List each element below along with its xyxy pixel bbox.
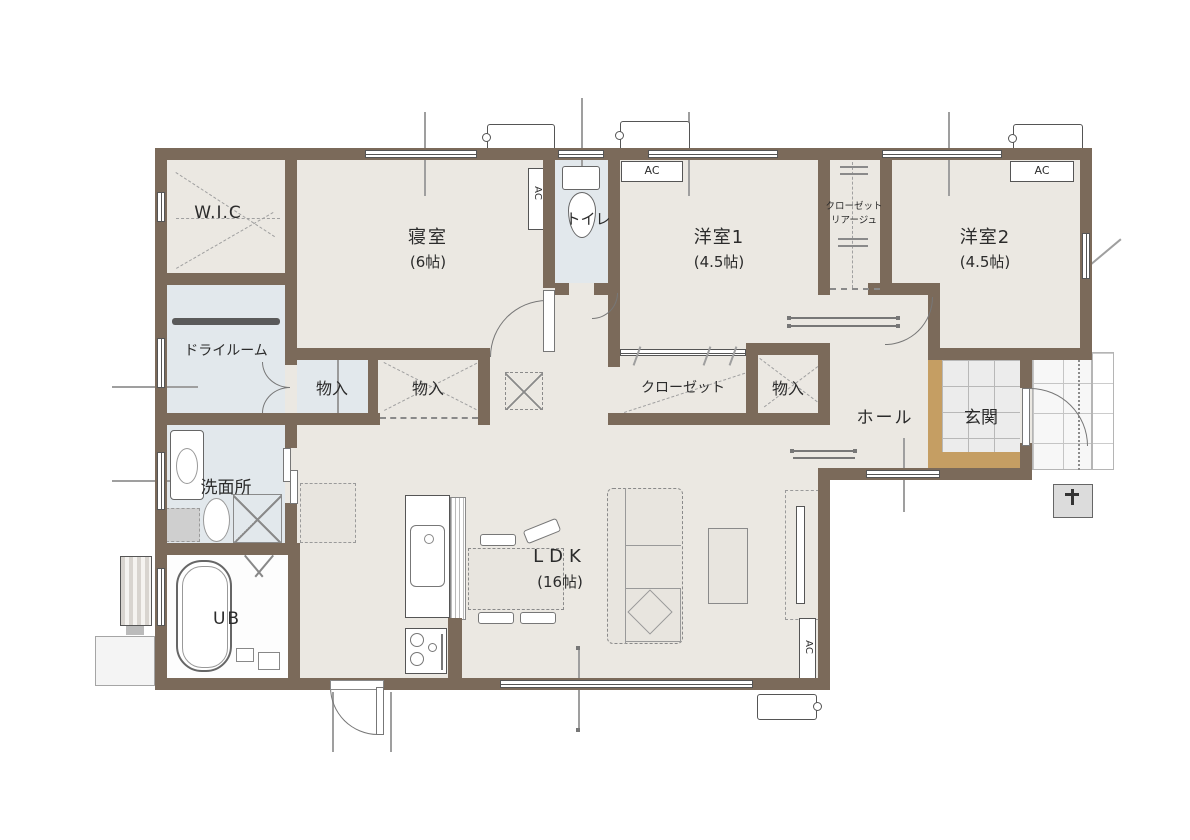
room-label-toilet: トイレ	[552, 208, 624, 230]
wall-kitchen-stub	[448, 618, 462, 690]
washing-machine	[166, 508, 200, 542]
room-label-storage2: 物入	[392, 378, 464, 400]
room-label-washroom: 洗面所	[181, 478, 271, 500]
wall-storage1-bottom	[297, 413, 380, 425]
window-bath-left	[157, 568, 165, 626]
dim-dot	[576, 646, 580, 650]
dining-chair	[520, 612, 556, 624]
wall-washroom-bath	[155, 543, 300, 555]
back-door-leaf	[376, 687, 384, 735]
porch-tile-outer	[1092, 352, 1114, 470]
room-label-storage3: 物入	[752, 378, 824, 400]
room-label-wic: W.I.C	[180, 202, 256, 226]
sofa-back	[607, 488, 626, 644]
window-western2-right	[1082, 233, 1090, 279]
window-toilet-top	[558, 150, 604, 158]
ceiling-hatch	[505, 372, 543, 410]
wall-wic-bottom	[155, 273, 297, 285]
tv-stand-center	[708, 528, 748, 604]
marker-dot	[896, 316, 900, 320]
liage-tick	[838, 238, 868, 240]
window-washroom-left	[157, 452, 165, 510]
marker-dot	[896, 324, 900, 328]
wall-bath-right	[288, 555, 300, 690]
stove-grill	[441, 634, 443, 670]
room-size-ldk: (16帖)	[512, 572, 608, 592]
marker-dot	[787, 324, 791, 328]
ac-label-western1: AC	[621, 163, 683, 179]
bath-counter	[236, 648, 254, 662]
marker-dot	[787, 316, 791, 320]
kitchen-cabinet	[450, 497, 466, 620]
back-door-step	[390, 692, 392, 752]
room-label-bedroom: 寝室	[386, 226, 470, 250]
faucet-icon	[1071, 489, 1074, 505]
floor-plan: AC AC AC AC W.I.C 寝室 (6帖) トイレ 洋室1 (4.5帖)…	[0, 0, 1190, 840]
liage-tick	[838, 245, 868, 247]
wall-toilet-bottom-a	[555, 283, 569, 295]
wall-wic-right	[285, 148, 297, 285]
room-label-unit-bath: UB	[199, 608, 255, 632]
wall-ldk-right	[818, 478, 830, 690]
wall-entrance-right-b	[1020, 443, 1032, 468]
outdoor-ac-unit	[620, 121, 690, 151]
wall-storage-divider	[368, 360, 378, 413]
room-label-closet-liage-1: クローゼット	[822, 200, 886, 214]
bath-stool	[258, 652, 280, 670]
dim-dot	[576, 728, 580, 732]
room-size-western2: (4.5帖)	[935, 252, 1035, 272]
marker-dot	[790, 449, 794, 453]
ac-label-western2: AC	[1010, 163, 1074, 179]
wall-dry-right	[285, 285, 297, 365]
outdoor-pad	[95, 636, 155, 686]
washroom-floor-hatch	[233, 494, 282, 543]
wall-closet-row-bottom	[608, 413, 830, 425]
room-label-ldk: LDK	[512, 544, 608, 570]
dry-room-pipe	[172, 318, 280, 325]
washroom-sliding-door-b	[290, 470, 298, 504]
stove-burner	[410, 633, 424, 647]
opening-marker-western1-b	[790, 325, 898, 327]
dining-chair	[480, 534, 516, 546]
liage-tick	[840, 173, 868, 175]
opening-marker-western1	[790, 317, 898, 319]
bedroom-door-leaf	[543, 290, 555, 352]
window-western2-top	[882, 150, 1002, 158]
window-bedroom-top	[365, 150, 477, 158]
wall-western2-bottom	[928, 348, 1092, 360]
opening-storage2-bottom	[380, 417, 478, 419]
entrance-door-leaf	[1022, 388, 1030, 446]
entrance-step-bottom	[942, 452, 1020, 468]
porch-overhang-line	[1078, 352, 1080, 470]
liage-tick	[840, 166, 868, 168]
sofa-seat-divider	[625, 545, 681, 546]
entrance-step-side	[928, 360, 942, 468]
dining-chair	[478, 612, 514, 624]
stove-burner-small	[428, 643, 437, 652]
room-label-western1: 洋室1	[669, 226, 769, 250]
faucet-icon-arm	[1065, 493, 1079, 496]
room-label-hall: ホール	[840, 406, 930, 432]
opening-liage-bottom	[830, 288, 880, 290]
water-heater-base	[126, 626, 144, 635]
wall-storage2-right	[478, 348, 490, 425]
room-label-dry-room: ドライルーム	[176, 341, 276, 363]
toilet-tank	[562, 166, 600, 190]
ac-label-ldk: AC	[801, 632, 815, 662]
laundry-basket	[203, 498, 230, 542]
room-label-closet: クローゼット	[638, 378, 728, 400]
room-label-western2: 洋室2	[935, 226, 1035, 250]
room-size-western1: (4.5帖)	[669, 252, 769, 272]
tv-screen	[796, 506, 805, 604]
cupboard	[300, 483, 356, 543]
outdoor-ac-unit	[757, 694, 817, 720]
kitchen-sink-drain	[424, 534, 434, 544]
marker-dot	[853, 449, 857, 453]
room-label-closet-liage-2: リアージュ	[822, 214, 886, 228]
room-label-storage1: 物入	[296, 378, 368, 400]
back-door-arc	[330, 687, 378, 735]
window-wic-left	[157, 192, 165, 222]
window-dry-left	[157, 338, 165, 388]
room-label-entrance: 玄関	[947, 406, 1015, 432]
opening-marker-hall-ldk	[793, 450, 855, 452]
stove-burner	[410, 652, 424, 666]
opening-marker-hall-ldk-b	[793, 457, 855, 459]
window-entrance-bottom	[866, 470, 940, 478]
wall-bedroom-bottom	[297, 348, 487, 360]
ac-label-bedroom: AC	[530, 178, 544, 208]
wall-washroom-right-a	[285, 413, 297, 448]
wall-toilet-right	[608, 148, 620, 367]
water-heater	[120, 556, 152, 626]
window-western1-top	[648, 150, 778, 158]
wall-entrance-right-a	[1020, 360, 1032, 388]
room-size-bedroom: (6帖)	[386, 252, 470, 272]
window-ldk-bottom	[500, 680, 753, 688]
wall-dry-washroom	[155, 413, 297, 425]
